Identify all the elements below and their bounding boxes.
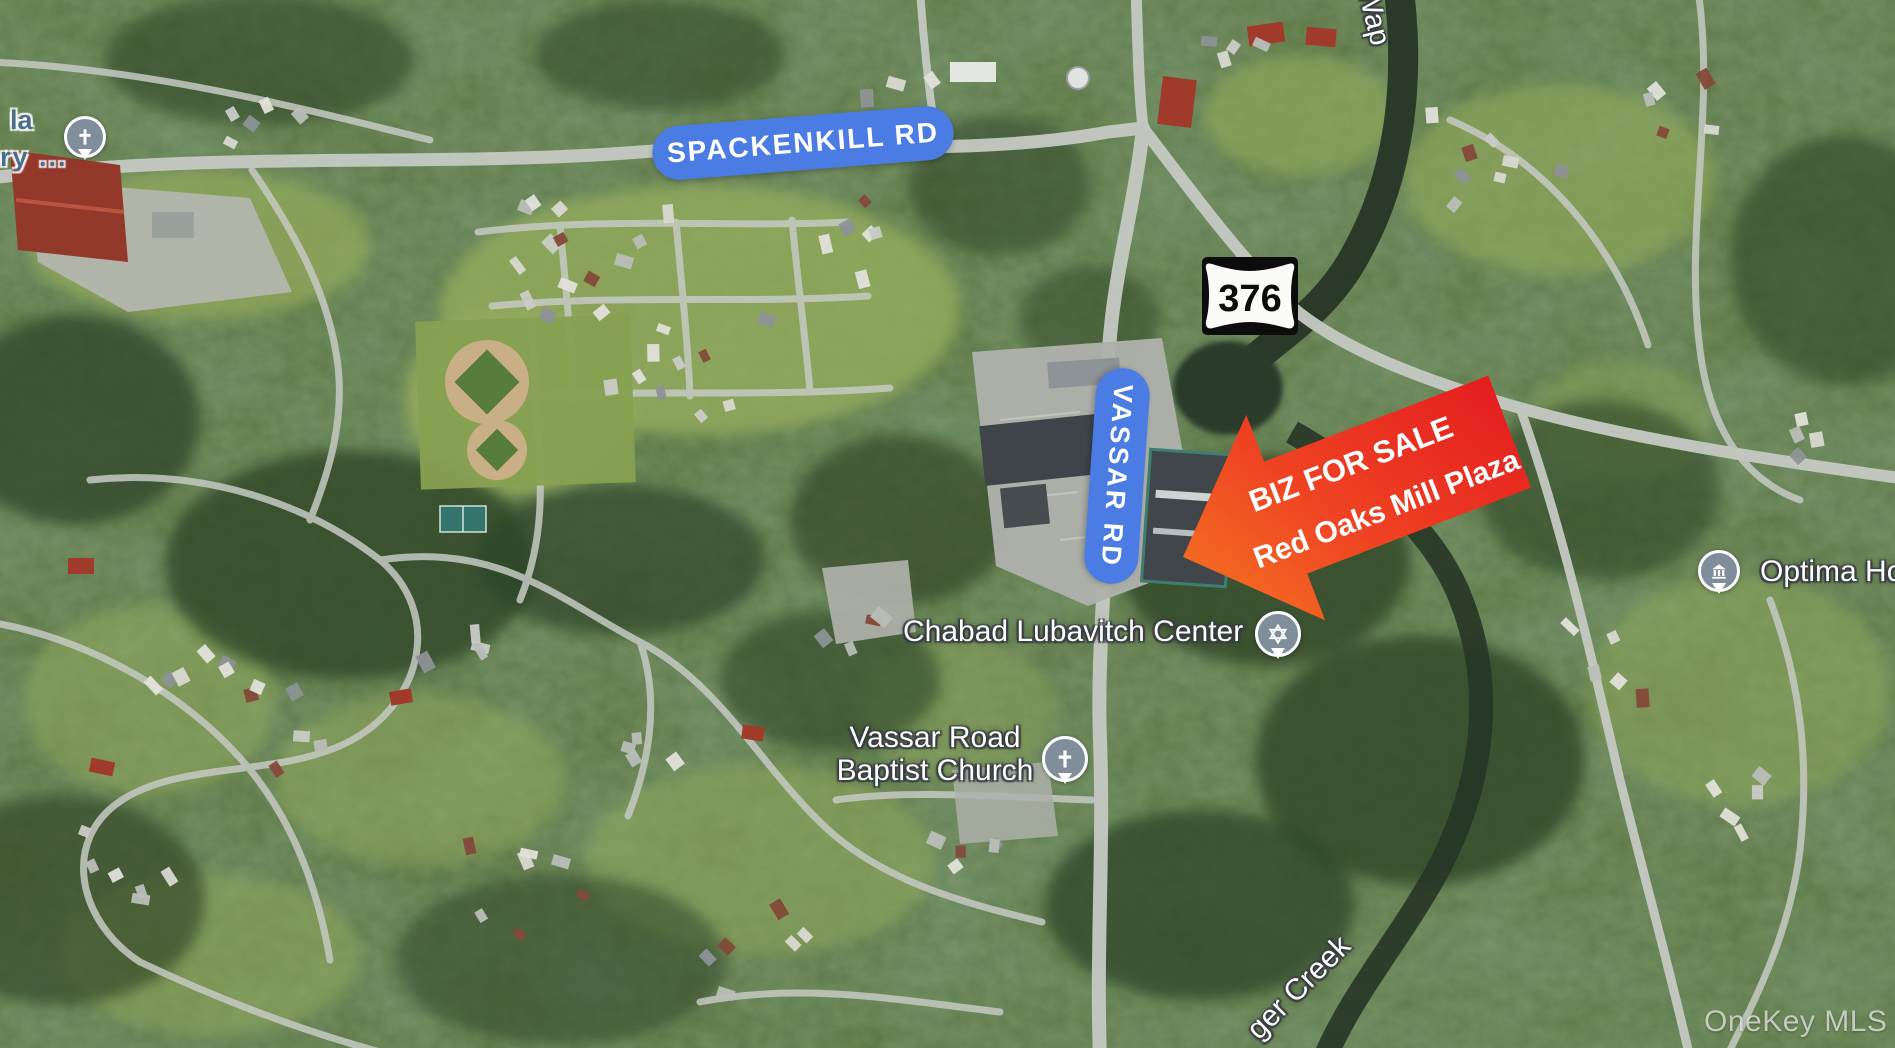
poi-marker-optima: [1698, 550, 1740, 592]
satellite-imagery: BIZ FOR SALE Red Oaks Mill Plaza: [0, 0, 1895, 1048]
poi-label-chabad: Chabad Lubavitch Center: [903, 615, 1243, 648]
poi-label-baptist-church: Vassar Road Baptist Church: [828, 721, 1042, 787]
poi-label-optima: Optima Hor: [1760, 555, 1895, 588]
map-canvas[interactable]: BIZ FOR SALE Red Oaks Mill Plaza SPACKEN…: [0, 0, 1895, 1048]
poi-marker-chabad: [1255, 611, 1301, 657]
cross-icon: [76, 128, 94, 146]
poi-label-partial-top-left: la ry ...: [0, 102, 68, 176]
ny-route-shield-icon: 376: [1202, 257, 1298, 335]
poi-marker-top-left-church: [64, 116, 106, 158]
poi-label-partial-line1: la: [0, 102, 68, 139]
poi-label-partial-line2: ry ...: [0, 139, 68, 176]
cross-icon: [1055, 749, 1075, 769]
route-shield-376: 376: [1202, 257, 1298, 335]
poi-marker-baptist-church: [1042, 736, 1088, 782]
watermark-onekey-mls: OneKey MLS: [1704, 1005, 1887, 1039]
route-number: 376: [1218, 278, 1281, 320]
poi-label-baptist-church-line2: Baptist Church: [837, 754, 1034, 787]
poi-label-baptist-church-line1: Vassar Road: [849, 721, 1020, 754]
building-icon: [1710, 562, 1728, 580]
star-of-david-icon: [1267, 623, 1289, 645]
